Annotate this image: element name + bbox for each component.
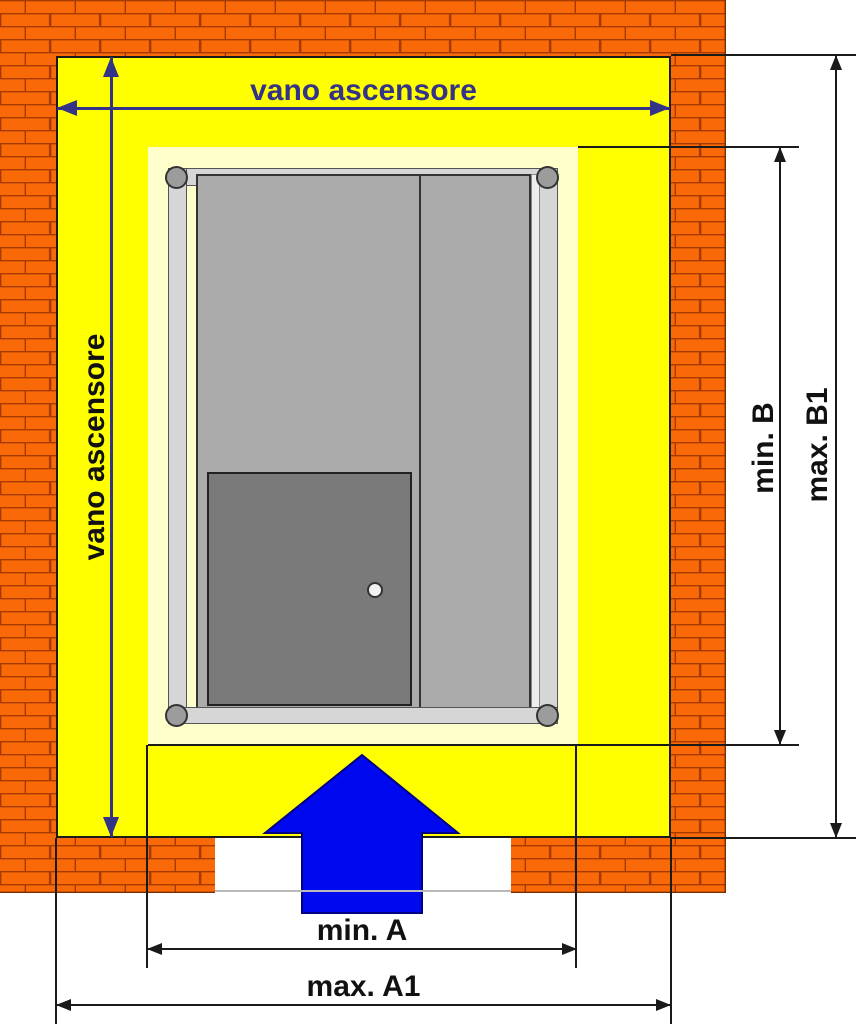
dim-shaft-height-label: vano ascensore — [80, 334, 110, 561]
dim-max-b1-ext-top — [671, 54, 856, 56]
car-frame-right-rail — [539, 168, 558, 724]
dim-max-a1-line — [56, 1004, 671, 1006]
entry-direction-arrow-icon — [260, 750, 465, 918]
car-frame-left-rail — [168, 168, 187, 724]
corner-roller-bottom-left-icon — [165, 704, 188, 727]
dim-max-b1-arrow-down-icon — [830, 823, 842, 838]
dim-min-b-ext-top — [578, 146, 799, 148]
dim-shaft-height-arrow-up-icon — [103, 57, 119, 77]
car-panel-divider — [419, 174, 421, 712]
corner-roller-top-right-icon — [536, 166, 559, 189]
car-side-strip — [531, 174, 540, 712]
elevator-shaft-diagram: vano ascensore vano ascensore min. B max… — [0, 0, 856, 1024]
opening-sill-line — [215, 890, 511, 892]
dim-shaft-width-label: vano ascensore — [57, 76, 670, 106]
corner-roller-bottom-right-icon — [536, 704, 559, 727]
dim-shaft-height-arrow-down-icon — [103, 817, 119, 837]
door-handle-knob-icon — [367, 582, 383, 598]
dim-min-b-arrow-down-icon — [774, 730, 786, 745]
dim-shaft-width-line — [57, 107, 670, 110]
dim-min-b-arrow-up-icon — [774, 147, 786, 162]
dim-max-b1-arrow-up-icon — [830, 55, 842, 70]
dim-min-b-label: min. B — [749, 402, 779, 494]
corner-roller-top-left-icon — [165, 166, 188, 189]
dim-max-a1-label: max. A1 — [56, 972, 671, 1002]
dim-max-b1-ext-bottom — [671, 837, 856, 839]
dim-min-a-line — [147, 948, 577, 950]
dim-max-b1-label: max. B1 — [803, 387, 833, 502]
car-frame-bottom-bar — [168, 707, 558, 724]
dim-min-b-ext-bottom — [148, 744, 799, 746]
dim-max-b1-line — [835, 55, 837, 838]
dim-min-a-label: min. A — [147, 916, 577, 946]
